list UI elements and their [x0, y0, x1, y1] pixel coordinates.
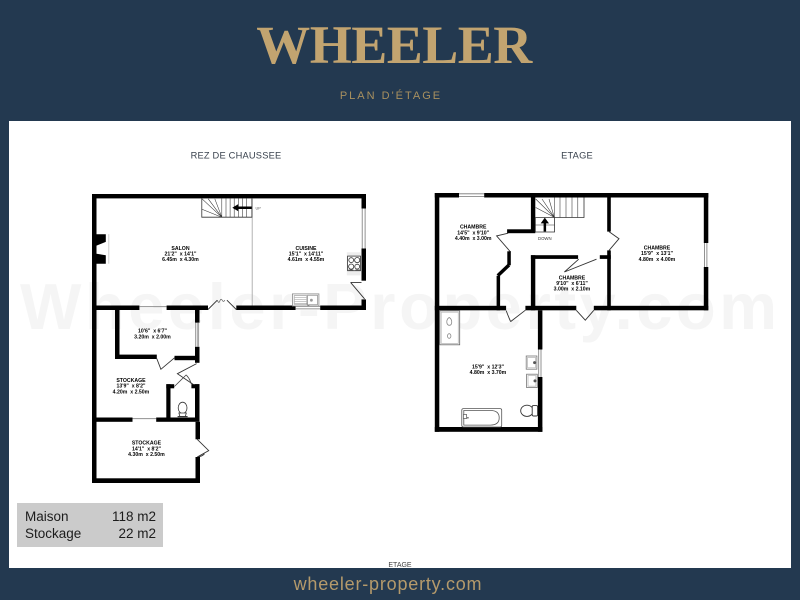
svg-text:4.80m x 4.00m: 4.80m x 4.00m: [639, 257, 676, 263]
svg-text:4.40m x 3.00m: 4.40m x 3.00m: [455, 236, 492, 242]
svg-text:4.30m x 2.50m: 4.30m x 2.50m: [128, 452, 165, 458]
svg-text:6.45m x 4.30m: 6.45m x 4.30m: [162, 257, 199, 263]
svg-text:3.00m x 2.10m: 3.00m x 2.10m: [554, 287, 591, 293]
svg-text:4.80m x 3.70m: 4.80m x 3.70m: [470, 370, 507, 376]
svg-text:UP: UP: [256, 206, 262, 210]
svg-text:3.20m x 2.00m: 3.20m x 2.00m: [134, 334, 171, 340]
svg-text:DOWN: DOWN: [538, 236, 552, 241]
svg-text:4.61m x 4.55m: 4.61m x 4.55m: [288, 257, 325, 263]
svg-text:4.20m x 2.50m: 4.20m x 2.50m: [113, 389, 150, 395]
svg-text:REZ DE CHAUSSEE: REZ DE CHAUSSEE: [191, 150, 282, 160]
svg-text:ETAGE: ETAGE: [561, 150, 593, 160]
